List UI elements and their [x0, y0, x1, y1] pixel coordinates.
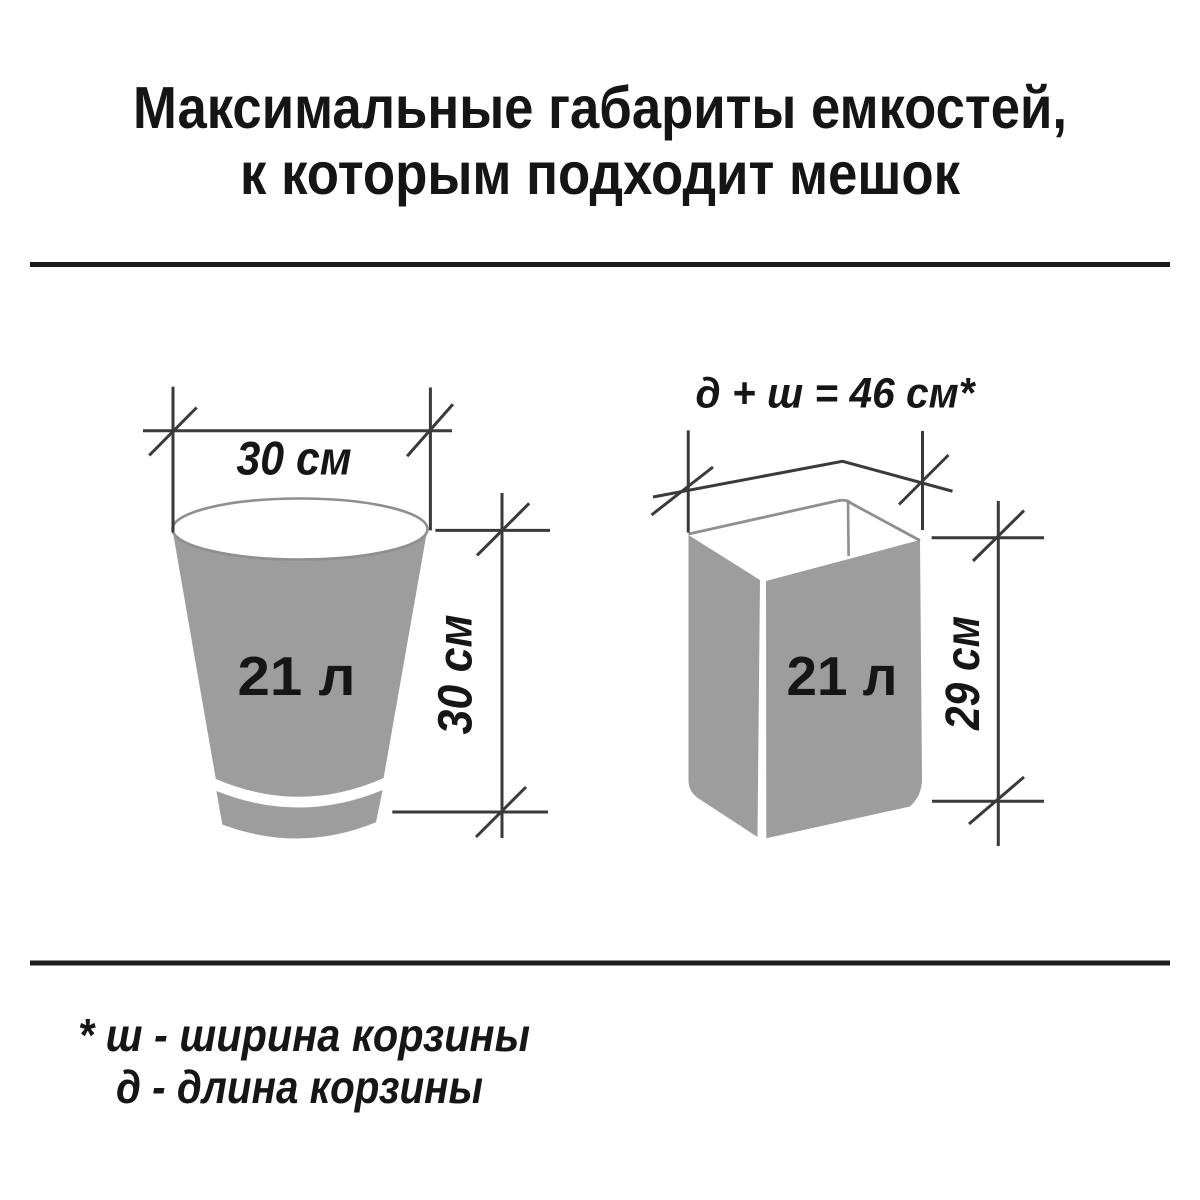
svg-text:21 л: 21 л — [787, 645, 898, 707]
svg-text:30 см: 30 см — [237, 431, 352, 484]
svg-text:к которым подходит мешок: к которым подходит мешок — [240, 141, 960, 207]
svg-text:д - длина корзины: д - длина корзины — [116, 1061, 483, 1113]
svg-text:Максимальные габариты емкостей: Максимальные габариты емкостей, — [133, 75, 1067, 141]
svg-text:30 см: 30 см — [430, 615, 483, 735]
svg-text:21 л: 21 л — [238, 645, 356, 707]
svg-text:* ш - ширина корзины: * ш - ширина корзины — [78, 1009, 530, 1061]
svg-text:д + ш = 46 см*: д + ш = 46 см* — [696, 370, 977, 418]
svg-text:29 см: 29 см — [937, 616, 990, 731]
